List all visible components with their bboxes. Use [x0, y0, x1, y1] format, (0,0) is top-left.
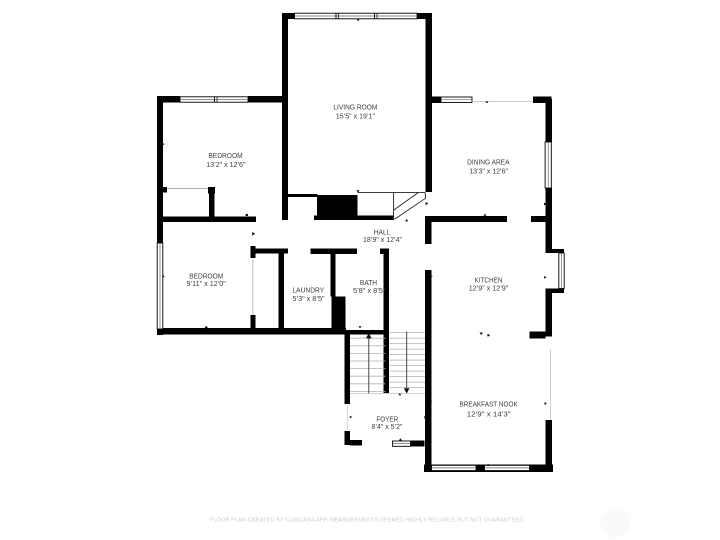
svg-text:5’8" x 8’5": 5’8" x 8’5" [353, 286, 386, 295]
svg-text:8’4" x 5’2": 8’4" x 5’2" [372, 422, 403, 431]
svg-text:15’5" x 19’1": 15’5" x 19’1" [336, 112, 376, 121]
svg-text:5’3" x 8’5": 5’3" x 8’5" [292, 294, 325, 303]
svg-text:12’9" x 14’3": 12’9" x 14’3" [467, 409, 511, 418]
svg-text:13’3" x 12’6": 13’3" x 12’6" [469, 166, 508, 175]
svg-text:12’9" x 12’9": 12’9" x 12’9" [469, 283, 509, 292]
svg-text:9’11" x 12’0": 9’11" x 12’0" [187, 279, 227, 288]
svg-text:DINING AREA: DINING AREA [467, 158, 509, 167]
svg-text:13’2" x 12’6": 13’2" x 12’6" [206, 160, 246, 169]
svg-text:BEDROOM: BEDROOM [208, 151, 242, 160]
svg-text:18’9" x 12’4": 18’9" x 12’4" [363, 235, 402, 244]
svg-text:BREAKFAST NOOK: BREAKFAST NOOK [459, 399, 517, 408]
svg-text:FLOOR PLAN CREATED BY CUBICASA: FLOOR PLAN CREATED BY CUBICASA.APP. MEAS… [210, 517, 525, 523]
svg-text:LIVING ROOM: LIVING ROOM [333, 103, 377, 112]
